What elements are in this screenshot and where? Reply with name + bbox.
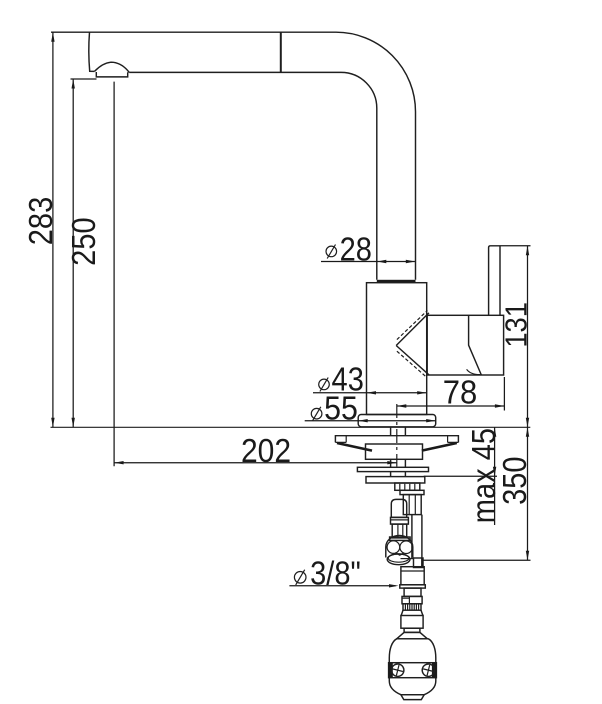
- svg-text:max 45: max 45: [465, 428, 502, 523]
- svg-text:28: 28: [340, 231, 372, 268]
- svg-text:131: 131: [500, 302, 534, 348]
- svg-text:55: 55: [324, 390, 358, 427]
- svg-text:250: 250: [65, 217, 102, 265]
- svg-text:3/8": 3/8": [310, 555, 361, 592]
- svg-text:283: 283: [22, 197, 59, 245]
- svg-text:78: 78: [443, 374, 478, 411]
- svg-text:202: 202: [241, 431, 291, 469]
